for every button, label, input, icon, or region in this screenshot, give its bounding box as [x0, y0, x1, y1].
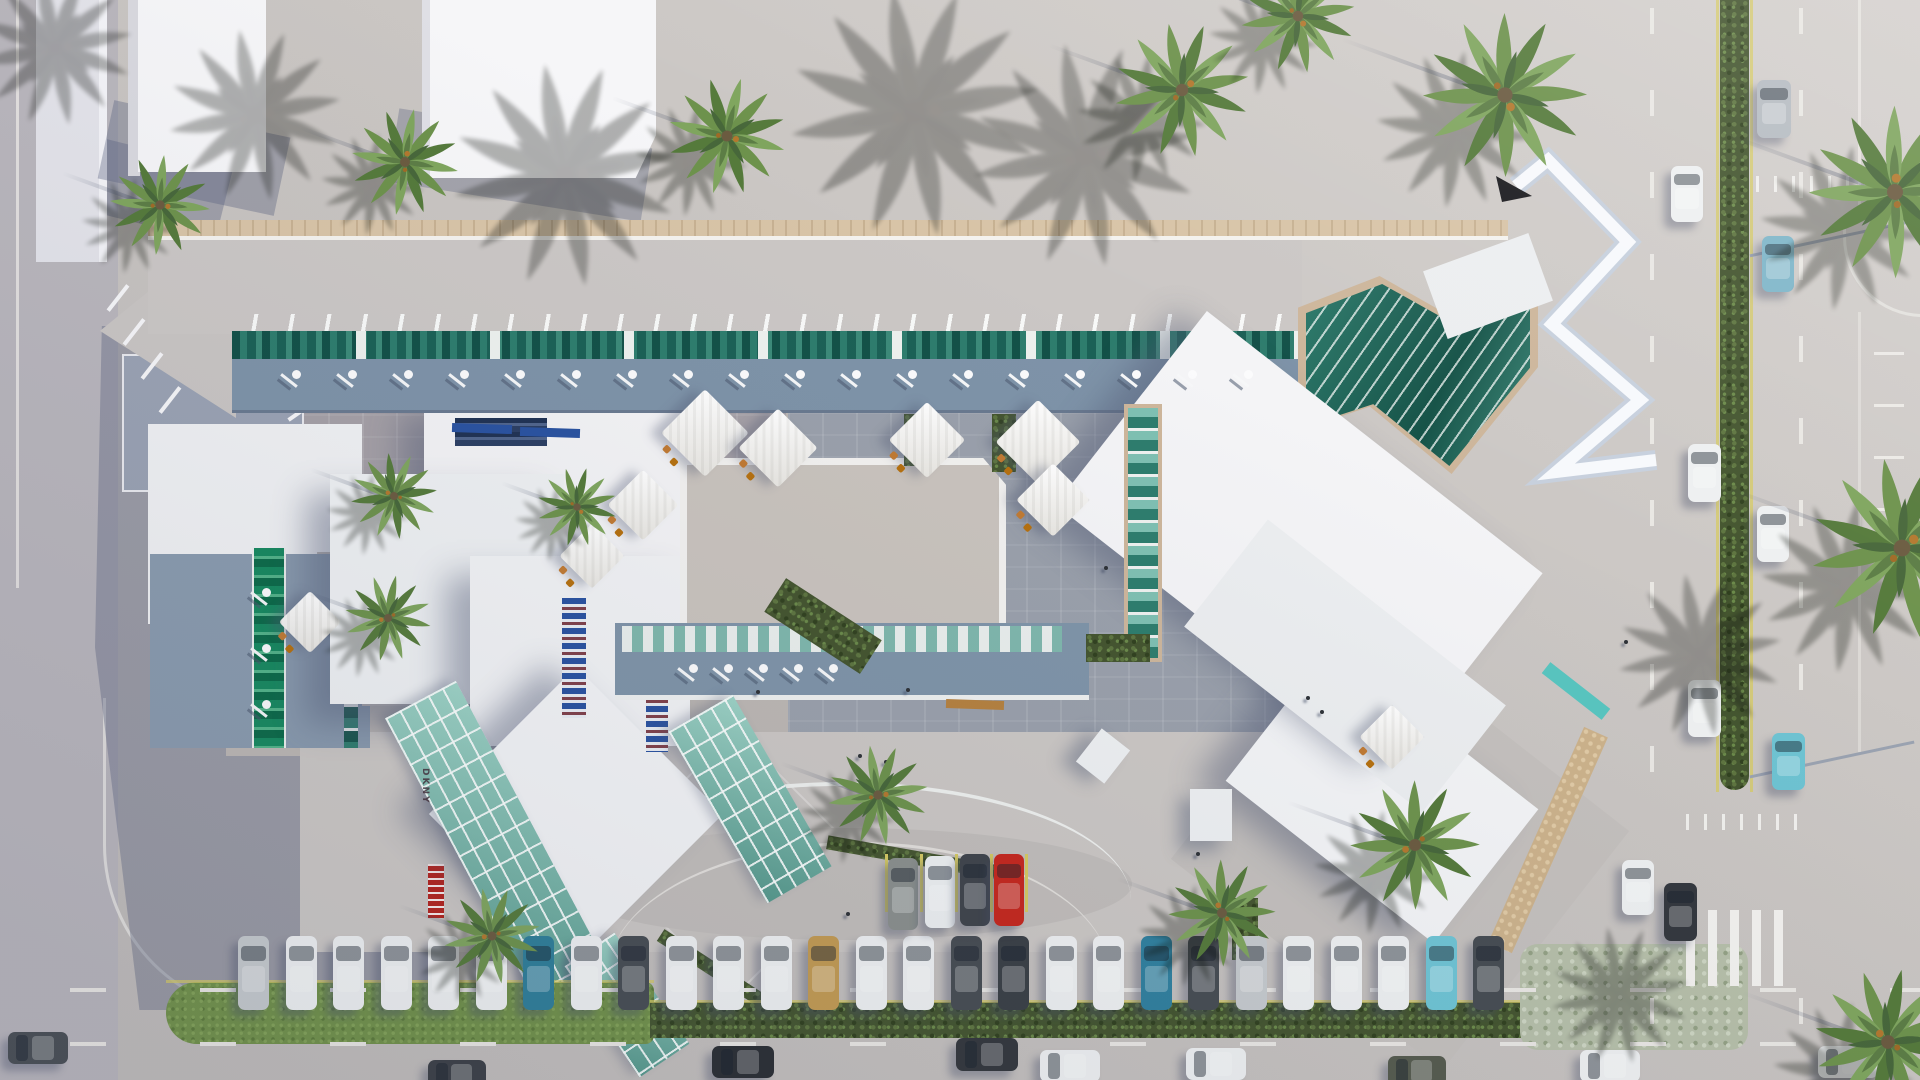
person: [756, 690, 760, 694]
stall-tick: [1874, 508, 1904, 511]
east-glass-column: [1124, 404, 1162, 662]
parked-car: [286, 936, 317, 1010]
roof-fan: [794, 664, 803, 673]
parked-car: [1046, 936, 1077, 1010]
roof-fan: [964, 370, 973, 379]
roof-fan: [516, 370, 525, 379]
palm-cast-shadow: [1189, 0, 1339, 115]
dropoff-car: [888, 858, 918, 930]
stall-tick: [1874, 456, 1904, 459]
stall-line-yellow: [1025, 854, 1028, 912]
roof-fan: [460, 370, 469, 379]
stall-line-yellow: [990, 854, 993, 912]
moving-car: [1762, 236, 1794, 292]
roof-fan: [908, 370, 917, 379]
stall-tick: [1874, 560, 1904, 563]
roof-fan: [759, 664, 768, 673]
roof-fan: [740, 370, 749, 379]
north-wing-coping: [148, 220, 1508, 236]
dropoff-car: [925, 856, 955, 928]
moving-car: [1757, 506, 1789, 562]
roof-fan: [348, 370, 357, 379]
roof-fan: [829, 664, 838, 673]
roof-fan: [262, 588, 271, 597]
roof-fan: [1132, 370, 1141, 379]
stall-tick: [1874, 352, 1904, 355]
moving-car: [712, 1046, 774, 1078]
stall-line-yellow: [955, 854, 958, 912]
parked-car: [666, 936, 697, 1010]
roof-fan: [689, 664, 698, 673]
stall-tick: [1874, 404, 1904, 407]
roof-fan: [724, 664, 733, 673]
curb-line-east: [1858, 312, 1861, 752]
dropoff-car: [994, 854, 1024, 926]
person: [1624, 640, 1628, 644]
roof-fan: [684, 370, 693, 379]
roof-fan: [262, 644, 271, 653]
dropoff-car: [960, 854, 990, 926]
east-aqua-strip: [1542, 662, 1611, 720]
parked-car: [1093, 936, 1124, 1010]
neighbor-roof: [138, 0, 266, 172]
palm-tree: [631, 40, 823, 232]
neighbor-roof: [36, 0, 106, 262]
roof-fan: [572, 370, 581, 379]
stop-ticks: [1686, 814, 1798, 830]
person: [1104, 566, 1108, 570]
valet-kiosk: [1190, 789, 1232, 841]
moving-car: [1040, 1050, 1100, 1080]
neighbor-roof-edge: [99, 0, 107, 262]
moving-car: [1757, 80, 1791, 138]
palm-cast-shadow: [1728, 466, 1920, 705]
parked-car: [998, 936, 1029, 1010]
palm-trunk-shadow: [1185, 0, 1304, 24]
person: [1306, 696, 1310, 700]
person: [1320, 710, 1324, 714]
roof-fan: [1188, 370, 1197, 379]
parked-car: [381, 936, 412, 1010]
roof-fan: [852, 370, 861, 379]
lane-dash-col: [1799, 998, 1803, 1080]
storefront-sign-text: DKNY: [420, 768, 430, 805]
parked-car: [856, 936, 887, 1010]
moving-car: [1622, 860, 1654, 915]
person: [858, 754, 862, 758]
parked-car: [808, 936, 839, 1010]
lane-dash-col: [1650, 998, 1654, 1080]
parked-car: [761, 936, 792, 1010]
moving-car: [428, 1060, 486, 1080]
parked-car: [1331, 936, 1362, 1010]
moving-car: [1388, 1056, 1446, 1080]
facade-louver-accent: [562, 598, 586, 718]
median-hedge: [1720, 0, 1749, 790]
parked-car: [523, 936, 554, 1010]
neighbor-roof: [430, 0, 656, 178]
person: [884, 760, 888, 764]
person: [1196, 852, 1200, 856]
moving-car: [8, 1032, 68, 1064]
green-strip: [1086, 634, 1150, 662]
lane-dash-col: [1799, 8, 1803, 780]
parked-car: [1473, 936, 1504, 1010]
person: [906, 688, 910, 692]
crosswalk: [1686, 910, 1792, 986]
parked-car: [571, 936, 602, 1010]
roof-fan: [292, 370, 301, 379]
parked-car: [1283, 936, 1314, 1010]
north-wing-braces: [232, 314, 1300, 331]
moving-car: [1688, 680, 1721, 737]
roof-fan: [1244, 370, 1253, 379]
moving-car: [1580, 1050, 1640, 1080]
parked-car: [428, 936, 459, 1010]
median-yellow-line: [1716, 0, 1719, 792]
roof-fan: [796, 370, 805, 379]
roof-fan: [404, 370, 413, 379]
aerial-render-canvas: DKNY: [0, 0, 1920, 1080]
parked-car: [1141, 936, 1172, 1010]
roof-fan: [628, 370, 637, 379]
palm-trunk-shadow: [1341, 37, 1512, 102]
palm-trunk-shadow: [1048, 43, 1189, 97]
roof-fan: [1020, 370, 1029, 379]
moving-car: [1186, 1048, 1246, 1080]
parked-car: [618, 936, 649, 1010]
stall-ticks-row: [1756, 176, 1920, 192]
north-wing-glass: [232, 331, 1300, 359]
moving-car: [1772, 733, 1805, 790]
median-yellow-line: [1750, 0, 1753, 792]
moving-car: [956, 1038, 1018, 1071]
parked-car: [713, 936, 744, 1010]
moving-car: [1671, 166, 1703, 222]
roof-fan: [1076, 370, 1085, 379]
parked-car: [1236, 936, 1267, 1010]
lane-dash-col: [1650, 8, 1654, 780]
parked-car: [476, 936, 507, 1010]
parked-car: [951, 936, 982, 1010]
moving-car: [1818, 1046, 1878, 1078]
street-west-curb: [16, 0, 19, 588]
moving-car: [1664, 883, 1697, 941]
roof-fan: [262, 700, 271, 709]
parked-car: [1378, 936, 1409, 1010]
moving-car: [1688, 444, 1721, 502]
parked-car: [1188, 936, 1219, 1010]
parked-car: [903, 936, 934, 1010]
parked-car: [238, 936, 269, 1010]
storefront-sign-red: [428, 864, 444, 918]
mid-deck-edge: [615, 695, 1089, 700]
parked-car: [333, 936, 364, 1010]
stall-line-yellow: [920, 854, 923, 912]
person: [846, 912, 850, 916]
parked-car: [1426, 936, 1457, 1010]
palm-tree: [1096, 4, 1267, 175]
